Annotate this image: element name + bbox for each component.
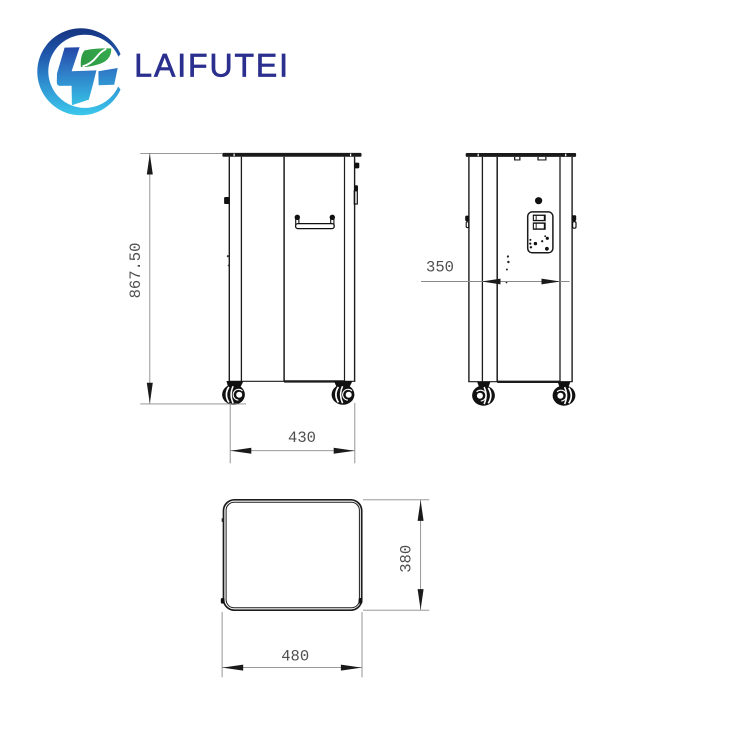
svg-text:LAIFUTEI: LAIFUTEI — [134, 47, 290, 83]
svg-text:480: 480 — [281, 647, 309, 665]
svg-text:867.50: 867.50 — [127, 243, 145, 299]
svg-text:350: 350 — [426, 258, 454, 276]
svg-text:430: 430 — [288, 429, 316, 447]
svg-text:380: 380 — [398, 545, 416, 573]
